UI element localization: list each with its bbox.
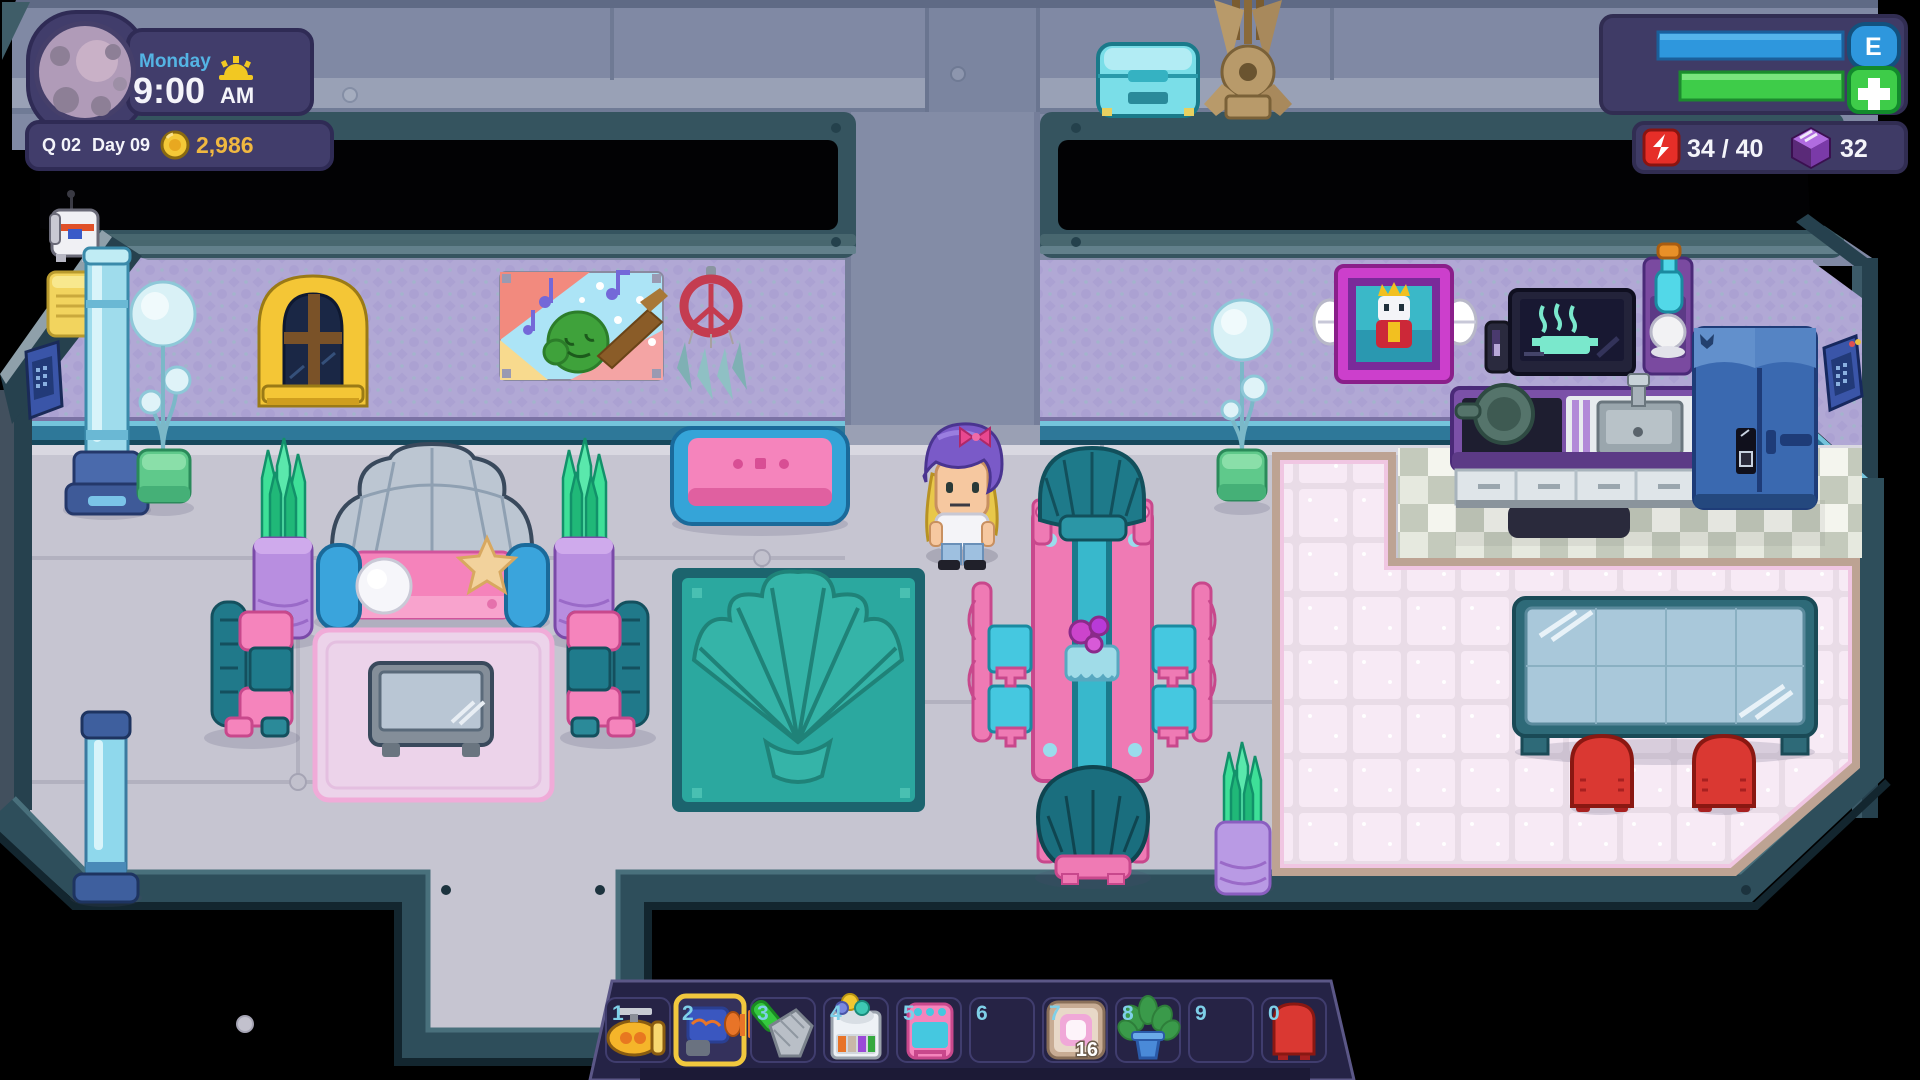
- svg-text:2,986: 2,986: [196, 132, 254, 158]
- svg-text:Monday: Monday: [139, 51, 211, 72]
- svg-text:9: 9: [1195, 1002, 1207, 1025]
- svg-text:0: 0: [1268, 1002, 1280, 1025]
- svg-text:7: 7: [1049, 1002, 1061, 1025]
- svg-text:2: 2: [682, 1002, 694, 1025]
- svg-text:5: 5: [903, 1002, 915, 1025]
- svg-text:Q 02: Q 02: [42, 135, 81, 155]
- svg-text:6: 6: [976, 1002, 988, 1025]
- svg-text:32: 32: [1840, 135, 1868, 163]
- svg-text:34 / 40: 34 / 40: [1687, 135, 1763, 163]
- svg-text:3: 3: [757, 1002, 769, 1025]
- svg-text:AM: AM: [220, 83, 254, 108]
- svg-text:16: 16: [1076, 1039, 1098, 1061]
- svg-text:E: E: [1865, 33, 1882, 61]
- svg-text:Day 09: Day 09: [92, 135, 150, 155]
- svg-text:8: 8: [1122, 1002, 1134, 1025]
- svg-text:1: 1: [612, 1002, 624, 1025]
- svg-text:4: 4: [830, 1002, 842, 1025]
- svg-text:9:00: 9:00: [133, 70, 205, 111]
